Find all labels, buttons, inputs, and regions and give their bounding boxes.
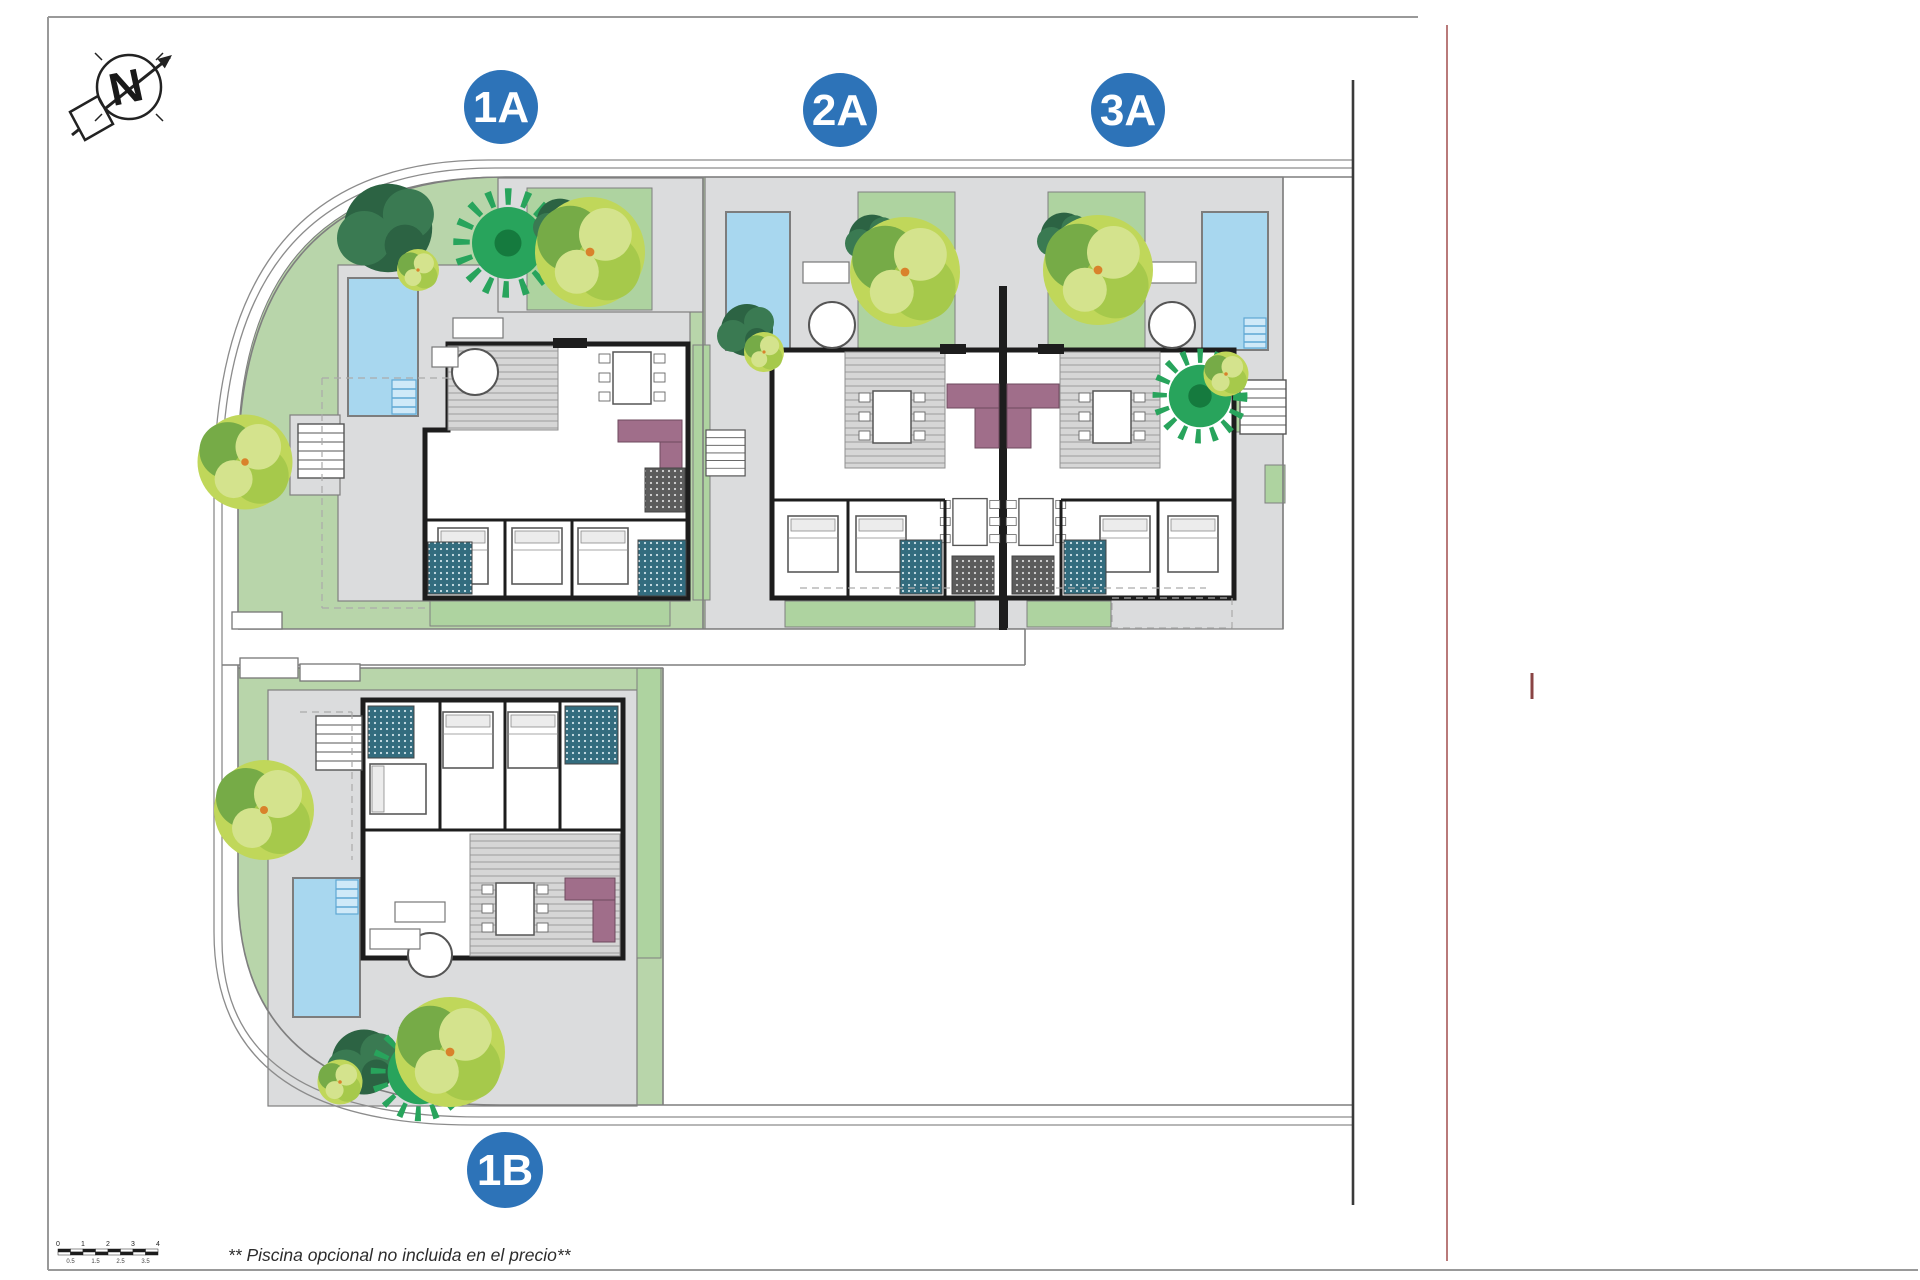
north-compass-icon: N	[70, 53, 172, 140]
svg-text:1A: 1A	[473, 83, 529, 132]
svg-text:2: 2	[106, 1241, 110, 1248]
pool-disclaimer-note: ** Piscina opcional no incluida en el pr…	[228, 1245, 572, 1265]
svg-text:3: 3	[131, 1241, 135, 1248]
tree-icon	[214, 760, 314, 860]
svg-text:1B: 1B	[477, 1146, 533, 1195]
unit-badge-1b: 1B	[467, 1132, 543, 1208]
tree-icon	[1204, 352, 1249, 397]
svg-text:2A: 2A	[812, 86, 868, 135]
svg-text:1: 1	[81, 1241, 85, 1248]
svg-text:0.5: 0.5	[66, 1259, 75, 1265]
pool-3a	[1202, 212, 1268, 350]
site-plan-drawing: N 1A 2A 3A 1B	[0, 0, 1920, 1280]
pool-1a	[348, 278, 418, 416]
pool-1b	[293, 878, 360, 1017]
svg-text:N: N	[104, 58, 147, 116]
party-wall	[999, 286, 1007, 630]
tree-icon	[397, 249, 439, 291]
scale-bar: 0 1 2 3 4 0.5 1.5 2.5 3.5	[56, 1241, 160, 1265]
unit-badge-2a: 2A	[803, 73, 877, 147]
svg-text:1.5: 1.5	[91, 1259, 100, 1265]
unit-badge-3a: 3A	[1091, 73, 1165, 147]
unit-badge-1a: 1A	[464, 70, 538, 144]
svg-text:3A: 3A	[1100, 86, 1156, 135]
svg-text:2.5: 2.5	[116, 1259, 125, 1265]
tree-icon	[744, 332, 784, 372]
tree-icon	[535, 197, 645, 307]
tree-icon	[850, 217, 960, 327]
tree-icon	[395, 997, 505, 1107]
svg-text:4: 4	[156, 1241, 160, 1248]
tree-icon	[318, 1060, 363, 1105]
svg-text:0: 0	[56, 1241, 60, 1248]
svg-text:3.5: 3.5	[141, 1259, 150, 1265]
site-plan-page: N 1A 2A 3A 1B	[0, 0, 1920, 1280]
tree-icon	[198, 415, 293, 510]
tree-icon	[1043, 215, 1153, 325]
middle-road	[214, 629, 1025, 665]
